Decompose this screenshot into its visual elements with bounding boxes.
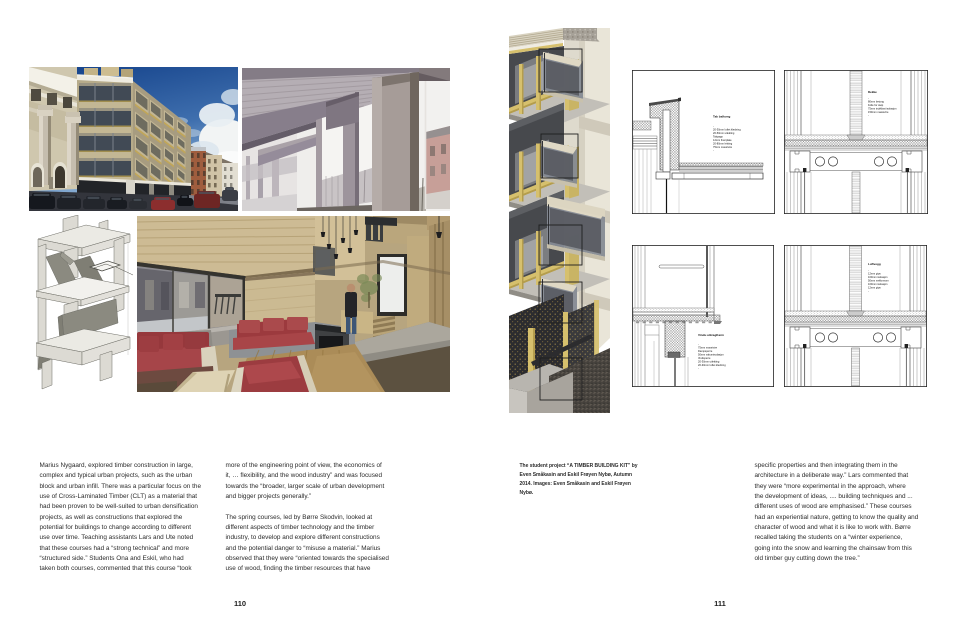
svg-text:Folie for støp: Folie for støp	[868, 103, 884, 107]
svg-text:150mm massivtre: 150mm massivtre	[868, 110, 889, 114]
svg-text:75mm massivtre: 75mm massivtre	[698, 345, 718, 349]
svg-text:12mm finerplate: 12mm finerplate	[713, 138, 732, 142]
svg-text:Vindsperre: Vindsperre	[698, 356, 711, 360]
svg-text:20-30mm utlekting: 20-30mm utlekting	[698, 359, 720, 363]
svg-text:-: -	[868, 290, 869, 293]
svg-text:50mm mellomrom: 50mm mellomrom	[868, 278, 889, 282]
svg-text:20-80mm lekting: 20-80mm lekting	[713, 141, 733, 145]
svg-text:Dekke: Dekke	[868, 90, 877, 94]
svg-text:-: -	[698, 367, 699, 370]
svg-text:Luftvegg: Luftvegg	[868, 262, 881, 266]
svg-text:20-50mm utlekting: 20-50mm utlekting	[713, 131, 735, 135]
svg-text:-: -	[868, 114, 869, 117]
svg-text:Dampsperre: Dampsperre	[698, 349, 713, 353]
svg-text:80mm betong: 80mm betong	[868, 99, 884, 103]
svg-text:75mm massivtre: 75mm massivtre	[713, 145, 733, 149]
svg-text:Tak balkong: Tak balkong	[713, 114, 730, 118]
svg-text:100mm isolasjon: 100mm isolasjon	[868, 275, 888, 279]
svg-text:Vindu utkragKarm: Vindu utkragKarm	[698, 333, 724, 337]
svg-text:Takpapp: Takpapp	[713, 134, 723, 138]
svg-text:100mm isolasjon: 100mm isolasjon	[868, 282, 888, 286]
svg-text:12mm gips: 12mm gips	[868, 271, 881, 275]
svg-text:50mm vakumisolasjon: 50mm vakumisolasjon	[698, 352, 724, 356]
svg-text:-: -	[713, 149, 714, 152]
svg-text:75mm trykkfast isolasjon: 75mm trykkfast isolasjon	[868, 106, 897, 110]
svg-text:12mm gips: 12mm gips	[868, 285, 881, 289]
svg-text:20-30mm luftet kledning: 20-30mm luftet kledning	[698, 363, 726, 367]
svg-text:20-30mm luftet kledning: 20-30mm luftet kledning	[713, 127, 741, 131]
